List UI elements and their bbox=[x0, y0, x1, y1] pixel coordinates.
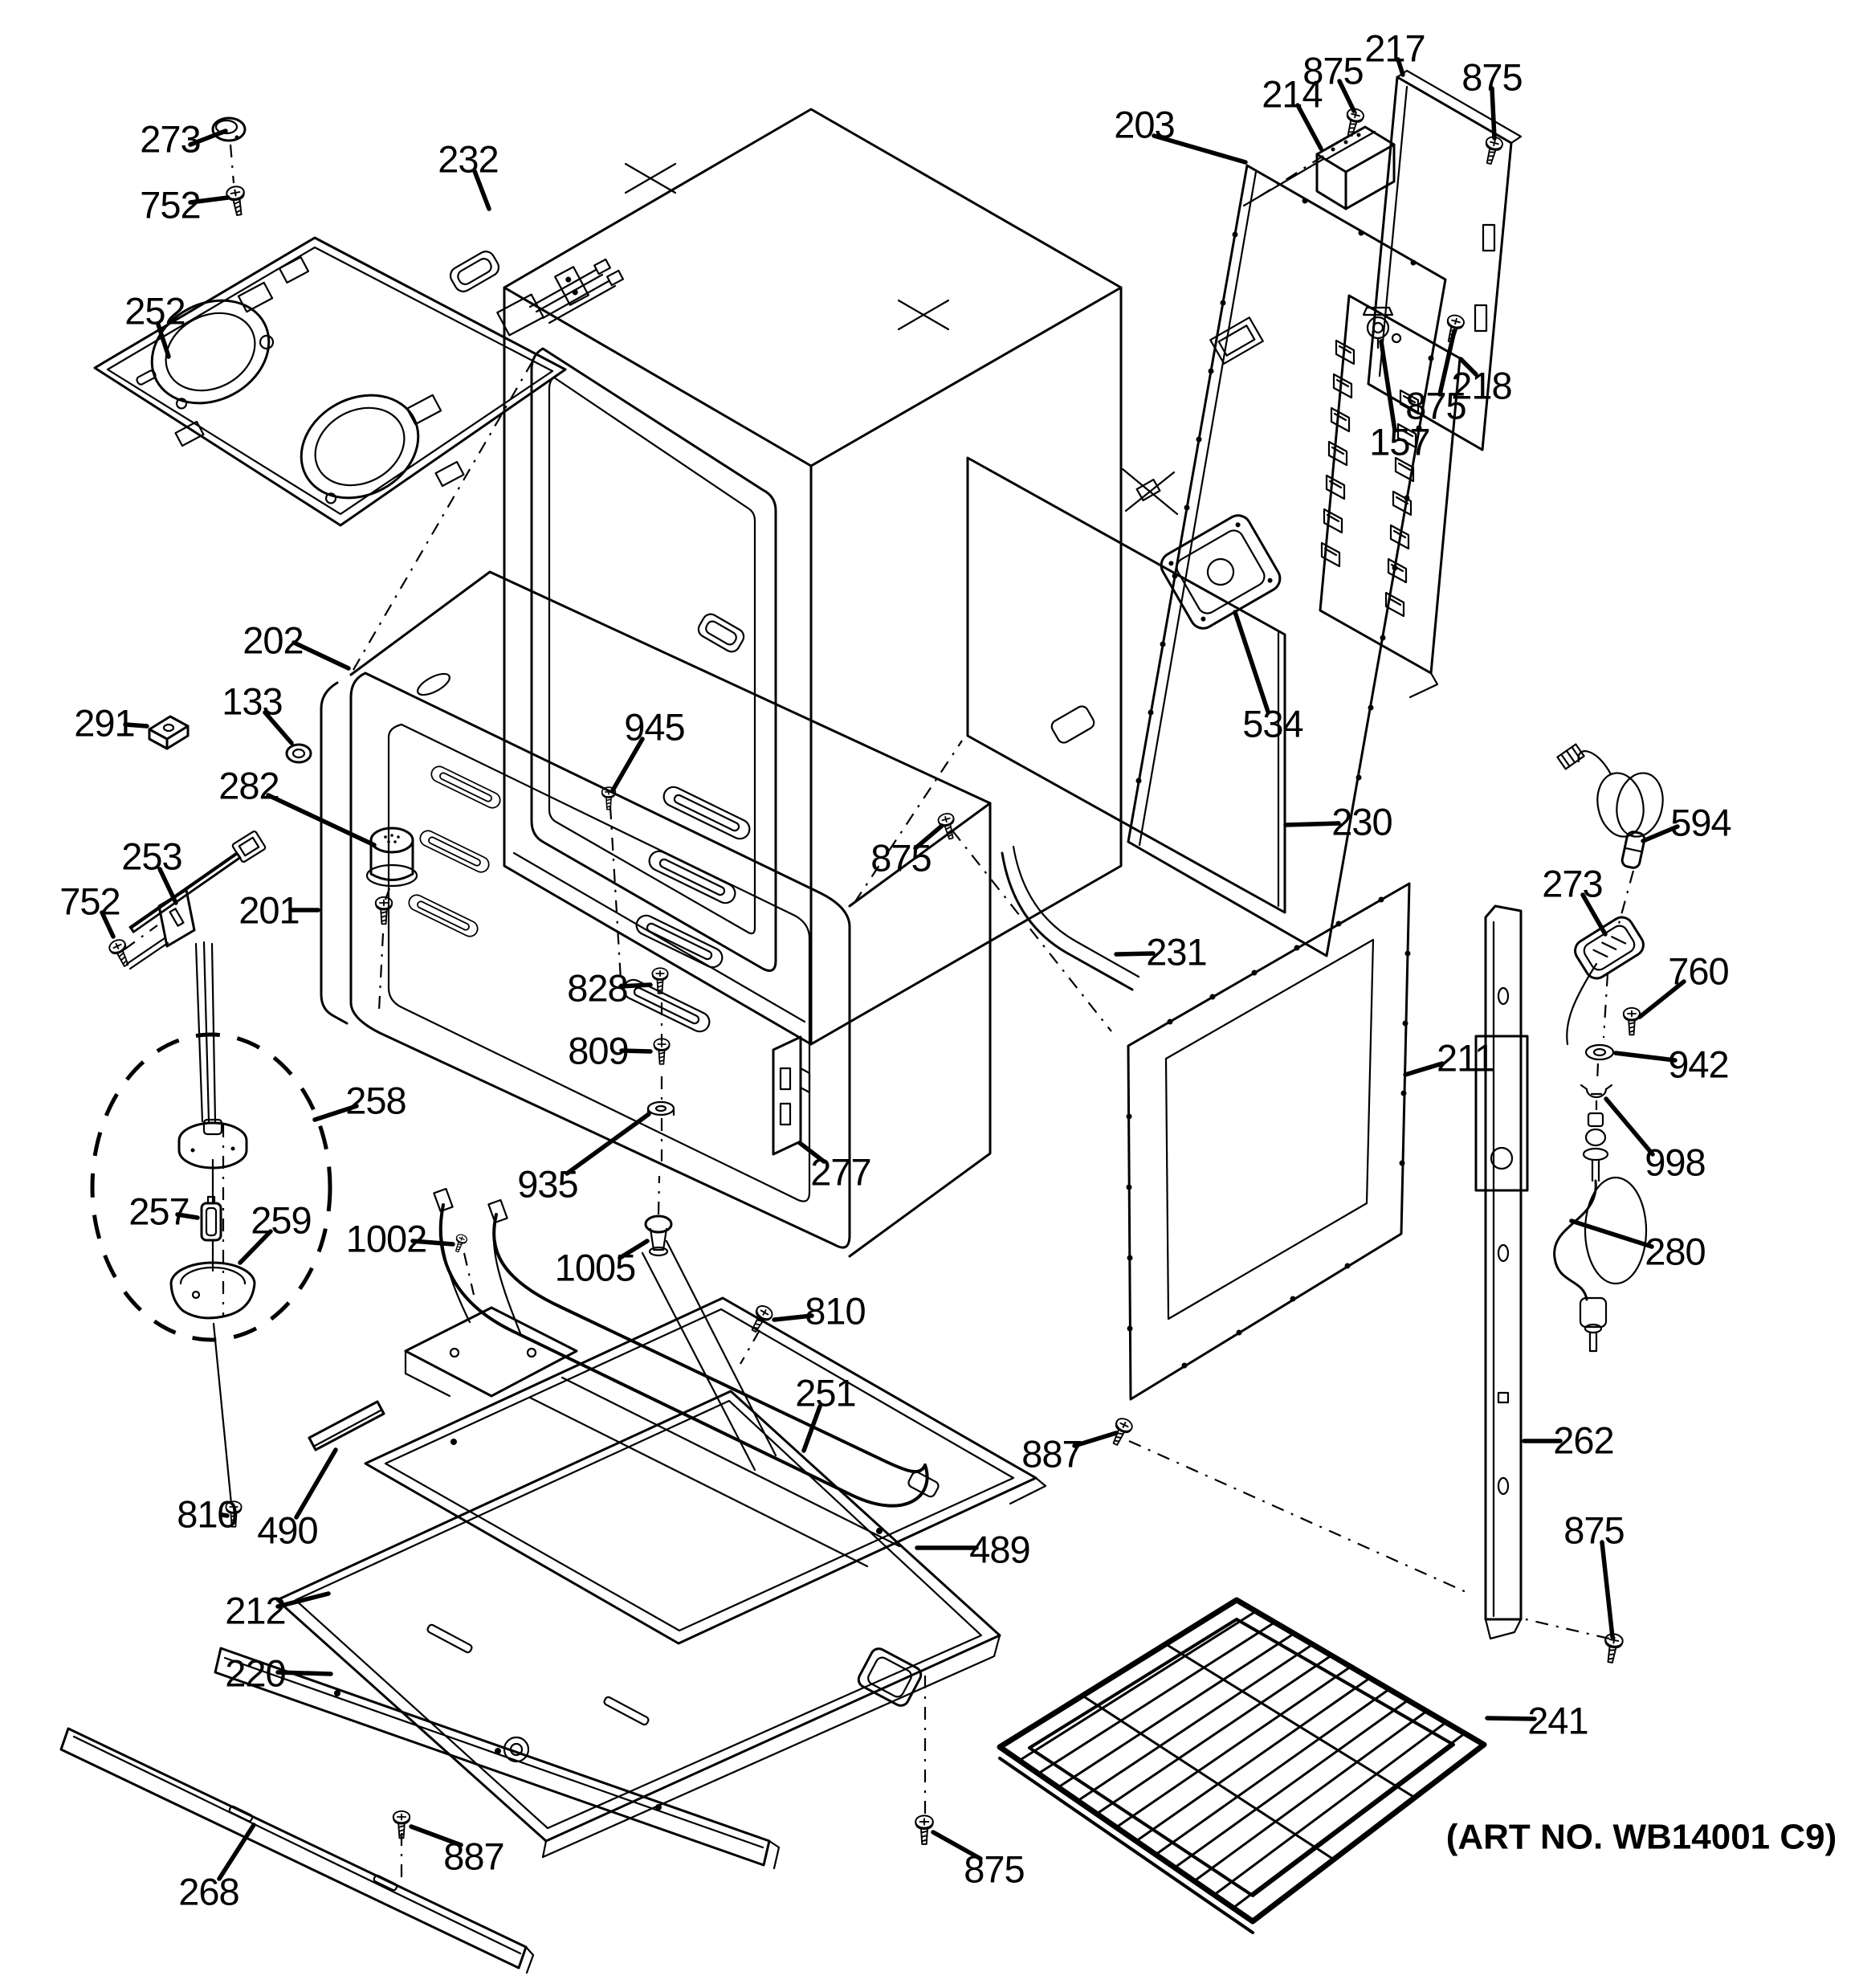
part-number-label: 875 bbox=[1302, 50, 1363, 92]
part-number-label: 875 bbox=[870, 837, 931, 880]
part-number-label: 217 bbox=[1364, 27, 1425, 70]
callout-1002: 1002 bbox=[346, 1218, 453, 1260]
callout-875-5: 875 bbox=[925, 1676, 1025, 1891]
grommet-133 bbox=[287, 745, 311, 762]
callout-211: 211 bbox=[1405, 1037, 1494, 1080]
part-number-label: 273 bbox=[1542, 863, 1602, 905]
part-number-label: 752 bbox=[140, 184, 200, 227]
plug-1005 bbox=[646, 1216, 671, 1255]
callout-232: 232 bbox=[438, 138, 498, 210]
screw-887 bbox=[1108, 1416, 1135, 1447]
screw-875 bbox=[1481, 135, 1503, 165]
callout-259: 259 bbox=[240, 1199, 312, 1263]
part-number-label: 875 bbox=[964, 1848, 1024, 1891]
bake-element-251 bbox=[434, 1189, 927, 1506]
side-panel-218 bbox=[1320, 296, 1460, 697]
callout-231: 231 bbox=[1116, 931, 1207, 974]
callout-257: 257 bbox=[128, 1190, 198, 1233]
part-number-label: 252 bbox=[124, 290, 185, 333]
part-number-label: 594 bbox=[1670, 802, 1731, 844]
alignment-dash-line bbox=[1526, 1619, 1609, 1639]
part-number-label: 942 bbox=[1668, 1043, 1728, 1086]
parts-diagram-page: 2737522522322032148752178752188751575342… bbox=[0, 0, 1863, 1988]
leader-line bbox=[1235, 612, 1268, 712]
alignment-dash-line bbox=[1129, 1441, 1470, 1594]
leader-line bbox=[278, 1672, 331, 1674]
fan-bracket bbox=[1123, 469, 1177, 514]
oven-rack-241 bbox=[1000, 1600, 1484, 1933]
callout-217: 217 bbox=[1364, 27, 1425, 76]
callout-202: 202 bbox=[243, 619, 349, 669]
lamp-receptacle-282 bbox=[367, 828, 417, 1010]
alignment-dash-line bbox=[658, 1176, 659, 1214]
clip-291 bbox=[149, 716, 188, 749]
part-number-label: 534 bbox=[1242, 703, 1302, 745]
callout-534: 534 bbox=[1235, 612, 1303, 745]
screw-760 bbox=[1624, 1008, 1640, 1035]
callout-291: 291 bbox=[74, 702, 147, 745]
alignment-dash-line bbox=[610, 806, 622, 993]
part-number-label: 133 bbox=[222, 680, 282, 723]
vent-duct-214 bbox=[1244, 127, 1394, 209]
part-number-label: 251 bbox=[795, 1372, 855, 1414]
part-number-label: 201 bbox=[238, 889, 299, 932]
callout-220: 220 bbox=[225, 1652, 331, 1695]
callout-253: 253 bbox=[121, 835, 181, 904]
screw-752 bbox=[108, 937, 134, 969]
screw-809 bbox=[654, 1039, 669, 1064]
callout-268: 268 bbox=[178, 1825, 254, 1913]
part-number-label: 203 bbox=[1114, 104, 1174, 146]
part-number-label: 262 bbox=[1553, 1419, 1613, 1462]
part-number-label: 1002 bbox=[346, 1218, 427, 1260]
fasteners bbox=[108, 107, 1640, 1844]
callout-935: 935 bbox=[517, 1114, 662, 1206]
leader-line bbox=[567, 1114, 649, 1174]
callout-887: 887 bbox=[1021, 1433, 1470, 1594]
part-number-label: 887 bbox=[1021, 1433, 1082, 1476]
callout-875-4: 875 bbox=[1526, 1509, 1625, 1639]
callout-203: 203 bbox=[1114, 104, 1245, 163]
part-number-label: 875 bbox=[1563, 1509, 1624, 1552]
leader-line bbox=[1572, 1221, 1652, 1247]
side-bracket-262 bbox=[1476, 906, 1527, 1639]
part-number-label: 202 bbox=[243, 619, 303, 662]
callout-810: 810 bbox=[177, 1493, 237, 1536]
part-number-label: 259 bbox=[251, 1199, 311, 1242]
part-number-label: 489 bbox=[969, 1529, 1029, 1571]
callout-201: 201 bbox=[238, 889, 318, 932]
part-number-label: 232 bbox=[438, 138, 498, 181]
part-number-label: 998 bbox=[1645, 1141, 1705, 1184]
gasket-273 bbox=[1567, 913, 1647, 1044]
callout-277: 277 bbox=[800, 1143, 871, 1194]
leader-line bbox=[1602, 1542, 1612, 1637]
part-number-label: 945 bbox=[624, 706, 684, 749]
part-number-label: 241 bbox=[1527, 1700, 1588, 1742]
callout-489: 489 bbox=[917, 1529, 1030, 1571]
part-number-label: 752 bbox=[59, 880, 120, 923]
part-number-label: 490 bbox=[257, 1509, 317, 1552]
latch-plate-277 bbox=[773, 1037, 809, 1154]
callout-273: 273 bbox=[140, 118, 226, 161]
leader-line bbox=[1616, 1053, 1675, 1060]
callout-258: 258 bbox=[315, 1080, 406, 1122]
element-terminals bbox=[497, 259, 623, 335]
part-number-label: 809 bbox=[568, 1030, 628, 1072]
part-number-label: 760 bbox=[1668, 950, 1728, 993]
leader-line bbox=[1286, 823, 1339, 825]
top-panel bbox=[95, 238, 623, 525]
callout-241: 241 bbox=[1487, 1700, 1588, 1742]
callout-133: 133 bbox=[222, 680, 291, 744]
callout-998: 998 bbox=[1606, 1099, 1706, 1184]
part-number-label: 1005 bbox=[555, 1247, 636, 1289]
part-number-label: 211 bbox=[1437, 1037, 1494, 1080]
part-number-label: 258 bbox=[345, 1080, 406, 1122]
part-number-label: 935 bbox=[517, 1163, 577, 1206]
cap-273 bbox=[213, 118, 245, 183]
part-number-label: 253 bbox=[121, 835, 181, 878]
alignment-dash-line bbox=[952, 831, 1111, 1031]
callout-942: 942 bbox=[1616, 1043, 1729, 1086]
screw-810 bbox=[376, 897, 392, 925]
part-number-label: 277 bbox=[810, 1151, 870, 1194]
exploded-diagram: 2737522522322032148752178752188751575342… bbox=[0, 0, 1863, 1988]
callout-273-2: 273 bbox=[1542, 863, 1605, 935]
art-number: (ART NO. WB14001 C9) bbox=[1446, 1818, 1837, 1857]
callout-490: 490 bbox=[257, 1450, 336, 1552]
callout-212: 212 bbox=[225, 1590, 328, 1632]
callout-251: 251 bbox=[795, 1372, 855, 1451]
washer-942 bbox=[1586, 1045, 1613, 1081]
screw-875 bbox=[915, 1815, 933, 1844]
part-number-label: 231 bbox=[1146, 931, 1206, 974]
callout-262: 262 bbox=[1524, 1419, 1614, 1462]
part-number-label: 212 bbox=[225, 1590, 285, 1632]
washer-935 bbox=[648, 1102, 674, 1115]
part-number-label: 828 bbox=[567, 967, 627, 1010]
trim-490 bbox=[309, 1402, 384, 1450]
leader-line bbox=[296, 1450, 336, 1517]
callout-809: 809 bbox=[568, 1030, 662, 1101]
part-number-label: 887 bbox=[443, 1835, 503, 1878]
part-number-label: 875 bbox=[1461, 56, 1522, 99]
part-number-label: 230 bbox=[1331, 801, 1392, 843]
part-number-label: 220 bbox=[225, 1652, 285, 1695]
part-number-label: 268 bbox=[178, 1871, 238, 1913]
callout-230: 230 bbox=[1286, 801, 1392, 843]
part-number-label: 257 bbox=[128, 1190, 189, 1233]
oven-bottom-212 bbox=[277, 1391, 1000, 1857]
callout-810-2: 810 bbox=[774, 1290, 866, 1333]
part-number-label: 280 bbox=[1645, 1231, 1705, 1273]
callout-752-2: 752 bbox=[59, 880, 120, 937]
part-number-label: 810 bbox=[805, 1290, 865, 1333]
callout-760: 760 bbox=[1640, 950, 1729, 1018]
oven-liner bbox=[321, 572, 990, 1256]
callout-875-2: 875 bbox=[1461, 56, 1522, 139]
part-number-label: 282 bbox=[218, 765, 279, 807]
part-number-label: 291 bbox=[74, 702, 134, 745]
part-number-label: 273 bbox=[140, 118, 200, 161]
part-number-label: 157 bbox=[1369, 421, 1429, 463]
screw-752 bbox=[226, 186, 247, 217]
callout-887-2: 887 bbox=[402, 1827, 504, 1884]
part-number-label: 810 bbox=[177, 1493, 237, 1536]
element-support-489 bbox=[365, 1298, 1046, 1643]
callout-752: 752 bbox=[140, 184, 228, 227]
leader-line bbox=[1381, 341, 1395, 431]
